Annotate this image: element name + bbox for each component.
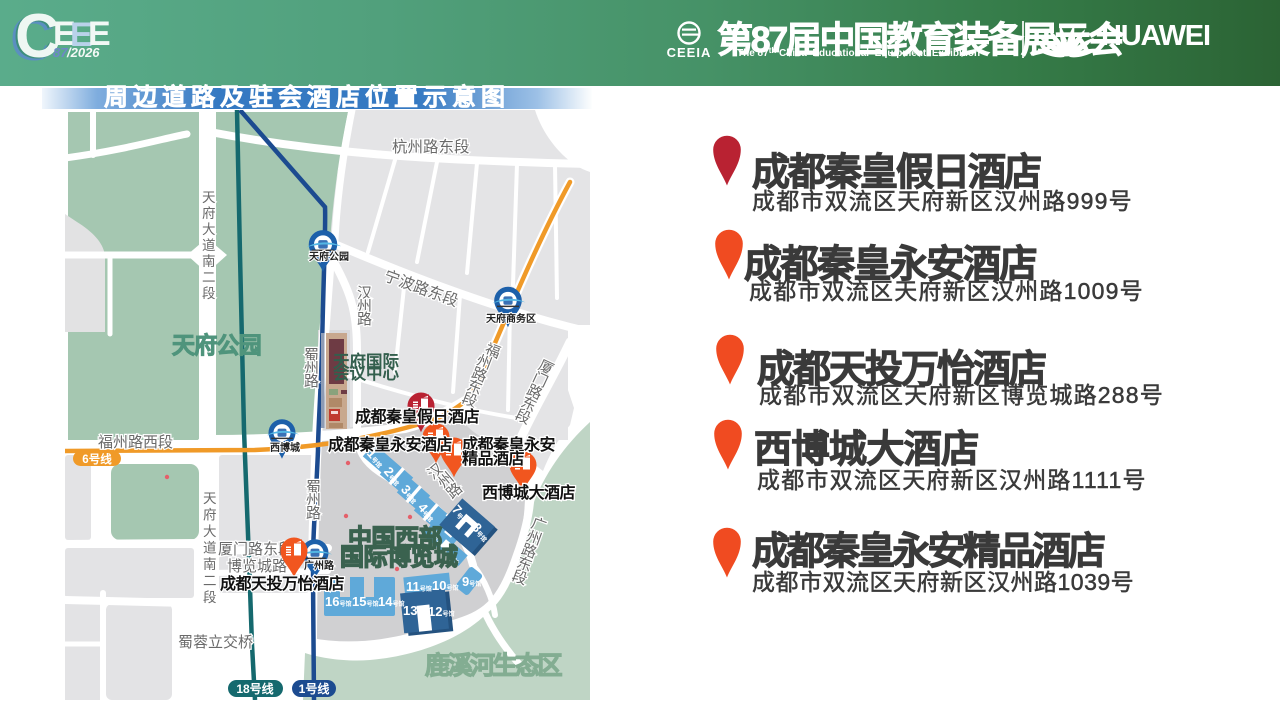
svg-text:87: 87 bbox=[53, 45, 68, 60]
svg-text:成都天投万怡酒店: 成都天投万怡酒店 bbox=[220, 574, 345, 593]
svg-text:成都秦皇假日酒店: 成都秦皇假日酒店 bbox=[355, 407, 480, 426]
svg-text:天府公园: 天府公园 bbox=[172, 332, 261, 358]
svg-text:杭州路东段: 杭州路东段 bbox=[392, 138, 470, 156]
svg-text:鹿溪河生态区: 鹿溪河生态区 bbox=[425, 651, 563, 680]
svg-text:1号线: 1号线 bbox=[299, 681, 330, 696]
svg-text:18号线: 18号线 bbox=[236, 681, 273, 696]
svg-text:6号线: 6号线 bbox=[82, 452, 112, 466]
svg-text:蜀州路: 蜀州路 bbox=[306, 479, 321, 522]
svg-text:天府商务区: 天府商务区 bbox=[486, 312, 536, 325]
svg-text:天府公园: 天府公园 bbox=[309, 250, 349, 263]
svg-text:国际博览城: 国际博览城 bbox=[340, 543, 458, 571]
svg-text:天府大道南二段: 天府大道南二段 bbox=[203, 491, 217, 605]
svg-text:精品酒店: 精品酒店 bbox=[462, 449, 525, 468]
svg-text:会议中心: 会议中心 bbox=[333, 363, 400, 383]
svg-text:成都秦皇永安酒店: 成都秦皇永安酒店 bbox=[328, 435, 453, 454]
svg-text:CEEIA: CEEIA bbox=[667, 45, 712, 60]
svg-text:/2026: /2026 bbox=[66, 45, 100, 60]
svg-text:广州路: 广州路 bbox=[304, 559, 335, 572]
svg-text:西博城大酒店: 西博城大酒店 bbox=[482, 483, 576, 502]
svg-text:蜀蓉立交桥: 蜀蓉立交桥 bbox=[178, 633, 253, 651]
svg-text:汉州路: 汉州路 bbox=[357, 285, 372, 328]
svg-text:蜀州路: 蜀州路 bbox=[304, 347, 319, 390]
svg-text:福州路西段: 福州路西段 bbox=[98, 434, 173, 451]
svg-text:博览城路: 博览城路 bbox=[227, 558, 287, 575]
svg-text:西博城: 西博城 bbox=[270, 441, 300, 454]
svg-text:天府大道南二段: 天府大道南二段 bbox=[202, 190, 216, 301]
